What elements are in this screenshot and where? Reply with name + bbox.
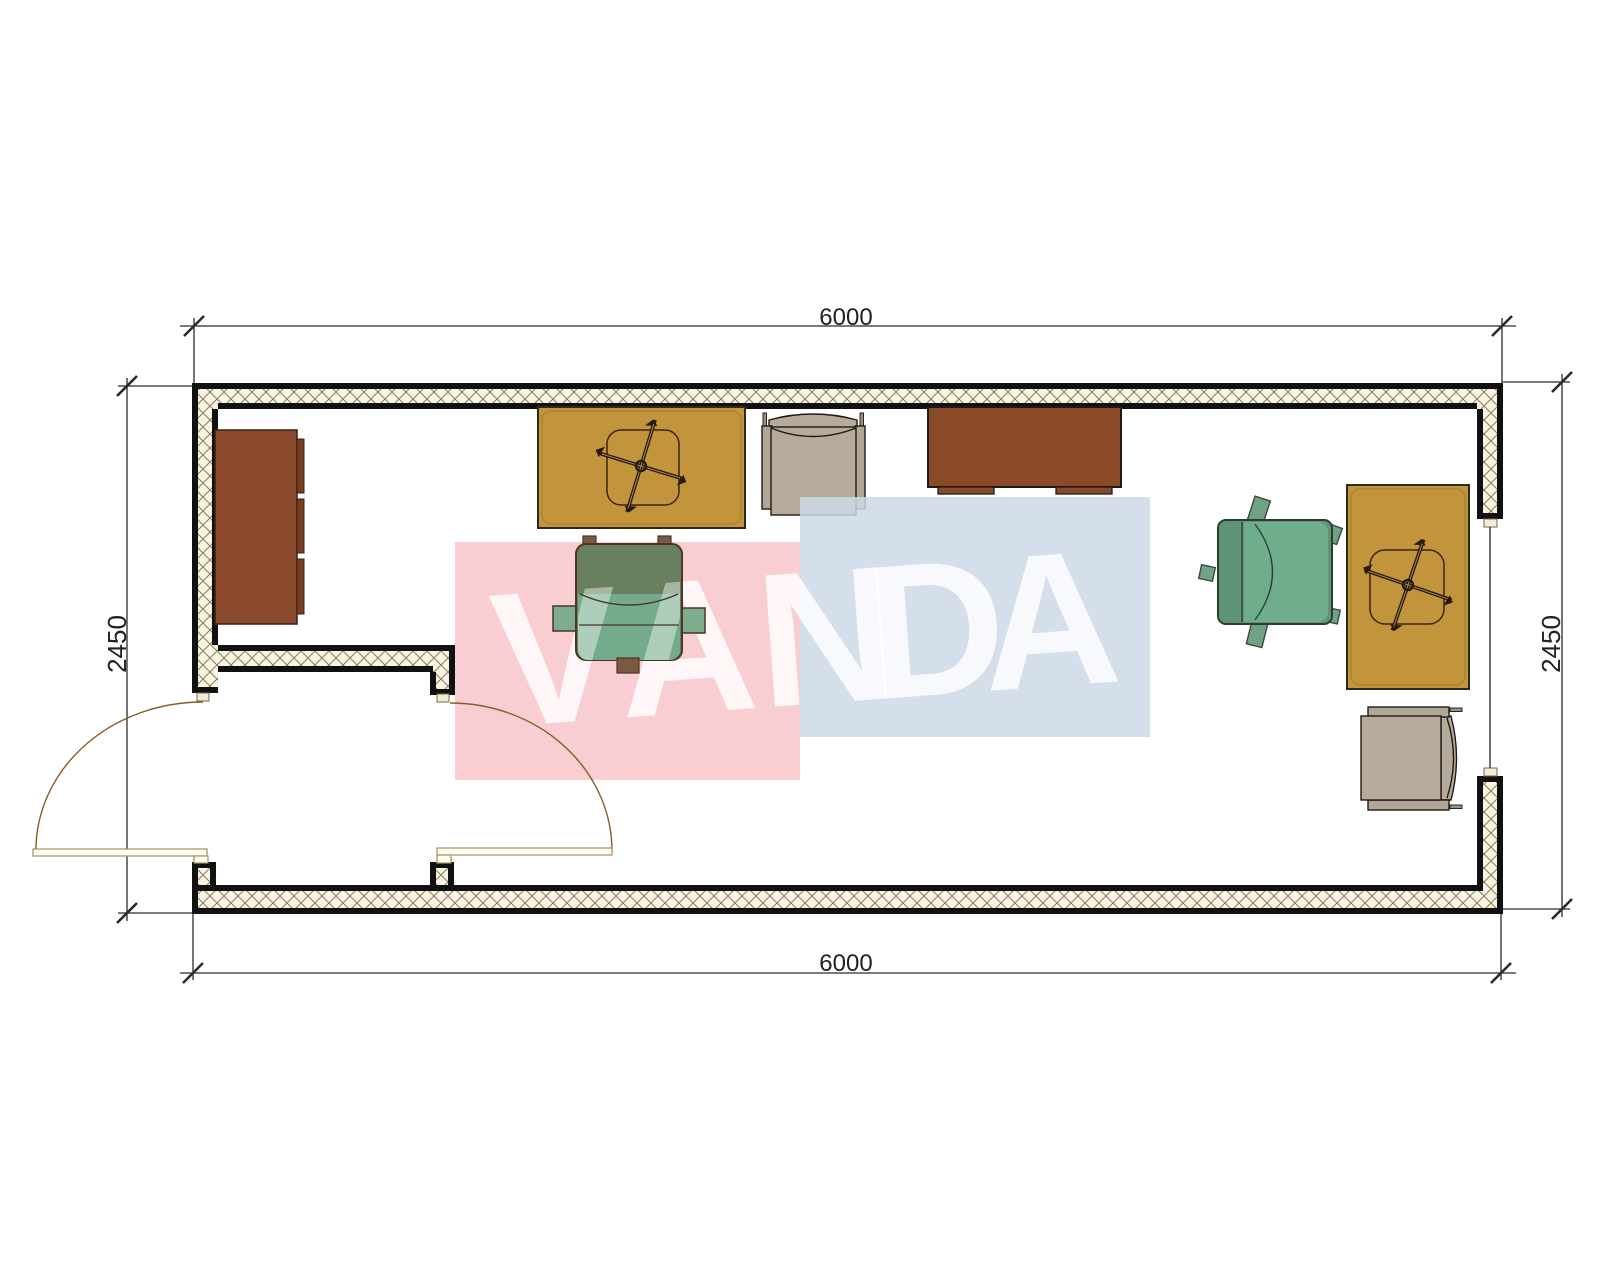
svg-text:A: A xyxy=(973,509,1126,732)
svg-text:6000: 6000 xyxy=(819,304,872,331)
svg-text:2450: 2450 xyxy=(1536,615,1566,673)
svg-text:2450: 2450 xyxy=(102,615,132,673)
svg-text:6000: 6000 xyxy=(819,950,872,977)
